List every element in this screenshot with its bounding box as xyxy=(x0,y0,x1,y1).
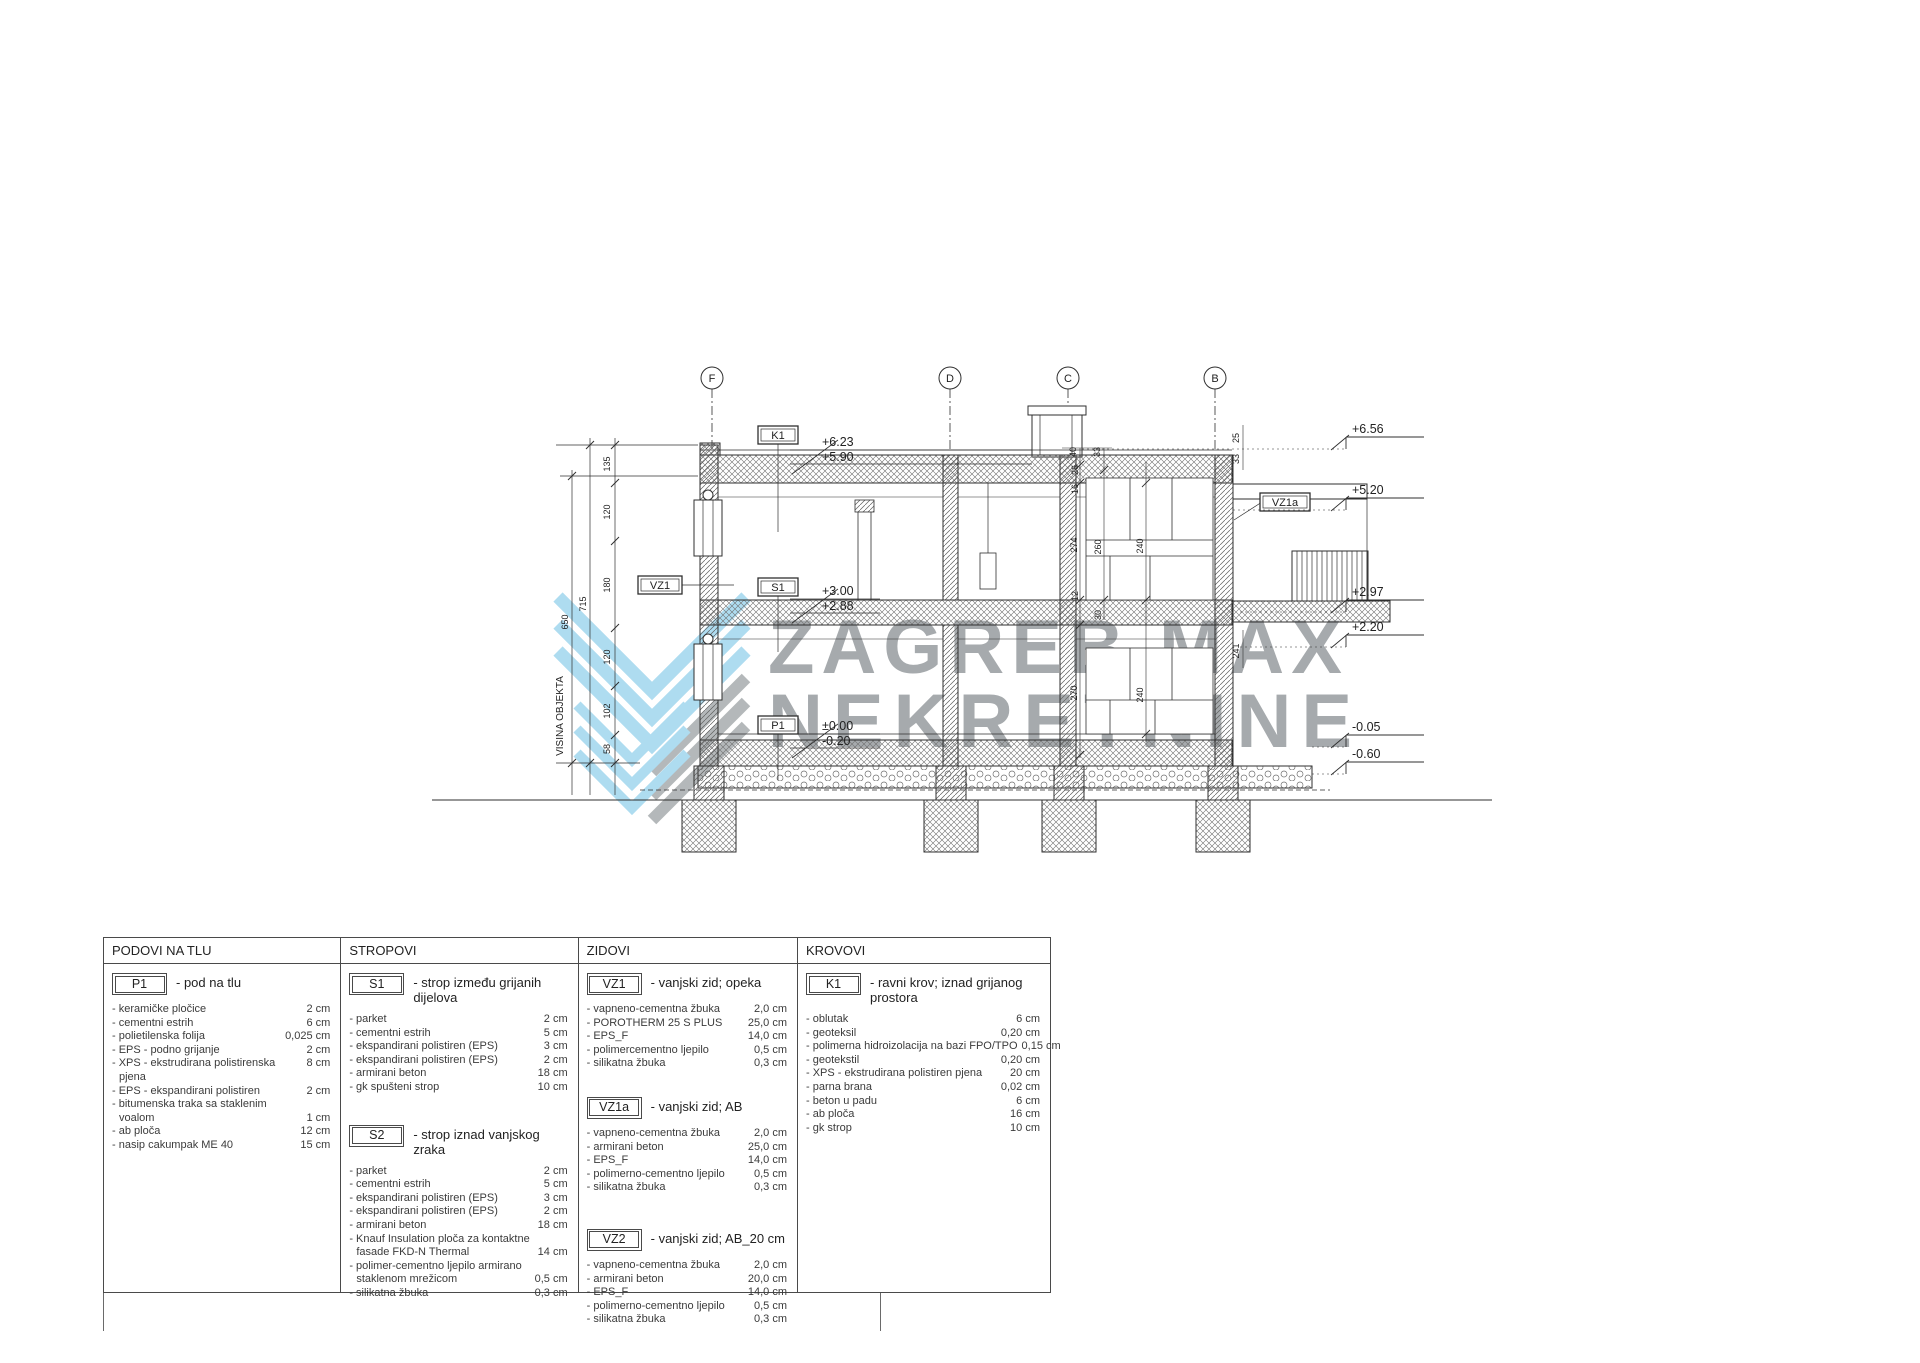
section-title: - vanjski zid; opeka xyxy=(651,973,762,990)
legend-item: - ekspandirani polistiren (EPS)3 cm xyxy=(349,1192,567,1206)
legend-item: - parket2 cm xyxy=(349,1013,567,1027)
legend-section-s2: S2 - strop iznad vanjskog zraka - parket… xyxy=(349,1125,567,1301)
legend-item: - armirani beton18 cm xyxy=(349,1219,567,1233)
legend-item: - XPS - ekstrudirana polistiren pjena20 … xyxy=(806,1067,1040,1081)
svg-text:260: 260 xyxy=(1093,539,1103,554)
legend-item: - armirani beton18 cm xyxy=(349,1067,567,1081)
legend-section-s1: S1 - strop između grijanih dijelova - pa… xyxy=(349,973,567,1095)
grid-bubble-d: D xyxy=(946,373,954,385)
legend-section-vz1a: VZ1a - vanjski zid; AB - vapneno-cementn… xyxy=(587,1097,787,1195)
legend-section-k1: K1 - ravni krov; iznad grijanog prostora… xyxy=(806,973,1040,1135)
legend-item: - gk strop10 cm xyxy=(806,1122,1040,1136)
legend-item: - gk spušteni strop10 cm xyxy=(349,1081,567,1095)
legend-item: - silikatna žbuka0,3 cm xyxy=(587,1181,787,1195)
elev-s1-top: +3.00 xyxy=(822,584,854,598)
section-title: - strop između grijanih dijelova xyxy=(413,973,543,1005)
level-minus005: -0.05 xyxy=(1352,720,1381,734)
elev-p1-top: ±0.00 xyxy=(822,719,853,733)
code-box-s2: S2 xyxy=(349,1125,404,1147)
svg-text:33: 33 xyxy=(1092,447,1102,457)
grid-bubble-c: C xyxy=(1064,373,1072,385)
legend-item: - armirani beton25,0 cm xyxy=(587,1141,787,1155)
legend-header-krovovi: KROVOVI xyxy=(798,938,1050,964)
legend-item: - vapneno-cementna žbuka2,0 cm xyxy=(587,1259,787,1273)
legend-item: - ab ploča12 cm xyxy=(112,1125,330,1139)
svg-text:30: 30 xyxy=(1093,610,1103,620)
svg-text:650: 650 xyxy=(560,614,570,629)
level-656: +6.56 xyxy=(1352,422,1384,436)
sheet-frame-line-left xyxy=(103,1293,104,1331)
legend-item: - ekspandirani polistiren (EPS)2 cm xyxy=(349,1205,567,1219)
legend-item: - silikatna žbuka0,3 cm xyxy=(587,1057,787,1071)
svg-text:240: 240 xyxy=(1135,538,1145,553)
section-title: - pod na tlu xyxy=(176,973,241,990)
door-section xyxy=(855,500,874,600)
legend-item: - beton u padu6 cm xyxy=(806,1095,1040,1109)
section-title: - ravni krov; iznad grijanog prostora xyxy=(870,973,1040,1005)
level-520: +5.20 xyxy=(1352,483,1384,497)
legend-item: - cementni estrih5 cm xyxy=(349,1027,567,1041)
legend-item: - geotekstil0,20 cm xyxy=(806,1054,1040,1068)
level-220: +2.20 xyxy=(1352,620,1384,634)
balcony xyxy=(1233,484,1390,622)
code-box-k1: K1 xyxy=(806,973,861,995)
legend-item: - vapneno-cementna žbuka2,0 cm xyxy=(587,1127,787,1141)
legend-item: - parket2 cm xyxy=(349,1165,567,1179)
cabinet-upper xyxy=(1086,478,1213,600)
legend-item: - XPS - ekstrudirana polistirenska8 cm xyxy=(112,1057,330,1071)
pendant-light xyxy=(980,483,996,589)
legend-item: - ekspandirani polistiren (EPS)3 cm xyxy=(349,1040,567,1054)
legend-section-vz1: VZ1 - vanjski zid; opeka - vapneno-cemen… xyxy=(587,973,787,1071)
cabinet-lower xyxy=(1086,648,1213,734)
svg-text:40: 40 xyxy=(1068,447,1078,457)
svg-text:26: 26 xyxy=(1070,465,1080,475)
legend-column-zidovi: ZIDOVI VZ1 - vanjski zid; opeka - vapnen… xyxy=(578,938,797,1292)
sheet-frame-line-right xyxy=(880,1293,881,1331)
code-box-vz2: VZ2 xyxy=(587,1229,642,1251)
legend-header-podovi: PODOVI NA TLU xyxy=(104,938,340,964)
tag-s1: S1 xyxy=(771,582,784,594)
svg-text:274: 274 xyxy=(1069,537,1079,552)
svg-text:240: 240 xyxy=(1135,687,1145,702)
grid-bubble-f: F xyxy=(709,373,716,385)
legend-item: - armirani beton20,0 cm xyxy=(587,1273,787,1287)
code-box-s1: S1 xyxy=(349,973,404,995)
legend-column-krovovi: KROVOVI K1 - ravni krov; iznad grijanog … xyxy=(797,938,1050,1292)
legend-item: - bitumenska traka sa staklenim xyxy=(112,1098,330,1112)
level-297: +2.97 xyxy=(1352,585,1384,599)
svg-text:16: 16 xyxy=(1070,484,1080,494)
legend-item: - EPS - podno grijanje2 cm xyxy=(112,1044,330,1058)
svg-text:120: 120 xyxy=(602,504,612,519)
legend-item: - EPS - ekspandirani polistiren2 cm xyxy=(112,1085,330,1099)
code-box-vz1a: VZ1a xyxy=(587,1097,642,1119)
legend-item: pjena xyxy=(112,1071,330,1085)
legend-item: - EPS_F14,0 cm xyxy=(587,1154,787,1168)
legend-item: - oblutak6 cm xyxy=(806,1013,1040,1027)
section-title: - strop iznad vanjskog zraka xyxy=(413,1125,567,1157)
legend-section-vz2: VZ2 - vanjski zid; AB_20 cm - vapneno-ce… xyxy=(587,1229,787,1327)
legend-column-stropovi: STROPOVI S1 - strop između grijanih dije… xyxy=(340,938,577,1292)
legend-item: staklenom mrežicom0,5 cm xyxy=(349,1273,567,1287)
legend-column-podovi: PODOVI NA TLU P1 - pod na tlu - keramičk… xyxy=(104,938,340,1292)
legend-item: - ekspandirani polistiren (EPS)2 cm xyxy=(349,1054,567,1068)
legend-item: fasade FKD-N Thermal14 cm xyxy=(349,1246,567,1260)
legend-item: - EPS_F14,0 cm xyxy=(587,1286,787,1300)
svg-text:33: 33 xyxy=(1231,454,1241,464)
tag-k1: K1 xyxy=(771,430,784,442)
dimension-labels-left: 135 120 180 120 102 58 715 650 VISINA OB… xyxy=(555,456,612,755)
legend-item: - parna brana0,02 cm xyxy=(806,1081,1040,1095)
building-structure xyxy=(432,406,1492,852)
legend-item: - cementni estrih6 cm xyxy=(112,1017,330,1031)
legend-item: - silikatna žbuka0,3 cm xyxy=(349,1287,567,1301)
legend-item: - keramičke pločice2 cm xyxy=(112,1003,330,1017)
legend-item: - nasip cakumpak ME 4015 cm xyxy=(112,1139,330,1153)
svg-text:241: 241 xyxy=(1231,643,1241,658)
elev-s1-bottom: +2.88 xyxy=(822,599,854,613)
legend-item: - silikatna žbuka0,3 cm xyxy=(587,1313,787,1327)
legend-item: - polimerno-cementno ljepilo0,5 cm xyxy=(587,1168,787,1182)
svg-text:270: 270 xyxy=(1069,685,1079,700)
svg-text:120: 120 xyxy=(602,649,612,664)
legend-item: - ab ploča16 cm xyxy=(806,1108,1040,1122)
tag-p1: P1 xyxy=(771,720,784,732)
section-title: - vanjski zid; AB_20 cm xyxy=(651,1229,785,1246)
legend-header-zidovi: ZIDOVI xyxy=(579,938,797,964)
svg-text:715: 715 xyxy=(578,596,588,611)
legend-item: - POROTHERM 25 S PLUS25,0 cm xyxy=(587,1017,787,1031)
svg-text:58: 58 xyxy=(602,744,612,754)
legend-section-p1: P1 - pod na tlu - keramičke pločice2 cm … xyxy=(112,973,330,1153)
legend-item: - cementni estrih5 cm xyxy=(349,1178,567,1192)
svg-text:102: 102 xyxy=(602,703,612,718)
building-height-label: VISINA OBJEKTA xyxy=(555,676,566,756)
elev-k1-top: +6.23 xyxy=(822,435,854,449)
grid-bubble-b: B xyxy=(1211,373,1218,385)
dimension-chain-left xyxy=(556,438,698,795)
tag-vz1a: VZ1a xyxy=(1272,497,1299,509)
elev-p1-bottom: -0.20 xyxy=(822,734,851,748)
legend-item: voalom1 cm xyxy=(112,1112,330,1126)
svg-text:135: 135 xyxy=(602,456,612,471)
svg-text:12: 12 xyxy=(1070,591,1080,601)
legend-item: - polietilenska folija0,025 cm xyxy=(112,1030,330,1044)
legend-item: - polimerna hidroizolacija na bazi FPO/T… xyxy=(806,1040,1040,1054)
code-box-p1: P1 xyxy=(112,973,167,995)
level-minus060: -0.60 xyxy=(1352,747,1381,761)
legend-item: - polimercementno ljepilo0,5 cm xyxy=(587,1044,787,1058)
legend-item: - vapneno-cementna žbuka2,0 cm xyxy=(587,1003,787,1017)
legend-header-stropovi: STROPOVI xyxy=(341,938,577,964)
materials-legend-table: PODOVI NA TLU P1 - pod na tlu - keramičk… xyxy=(103,937,1051,1293)
svg-text:25: 25 xyxy=(1231,433,1241,443)
legend-item: - Knauf Insulation ploča za kontaktne xyxy=(349,1233,567,1247)
legend-item: - geoteksil0,20 cm xyxy=(806,1027,1040,1041)
svg-text:180: 180 xyxy=(602,577,612,592)
grid-axes xyxy=(701,367,1226,460)
elev-k1-bottom: +5.90 xyxy=(822,450,854,464)
tag-vz1: VZ1 xyxy=(650,580,670,592)
code-box-vz1: VZ1 xyxy=(587,973,642,995)
section-title: - vanjski zid; AB xyxy=(651,1097,743,1114)
legend-item: - polimerno-cementno ljepilo0,5 cm xyxy=(587,1300,787,1314)
legend-item: - polimer-cementno ljepilo armirano xyxy=(349,1260,567,1274)
legend-item: - EPS_F14,0 cm xyxy=(587,1030,787,1044)
